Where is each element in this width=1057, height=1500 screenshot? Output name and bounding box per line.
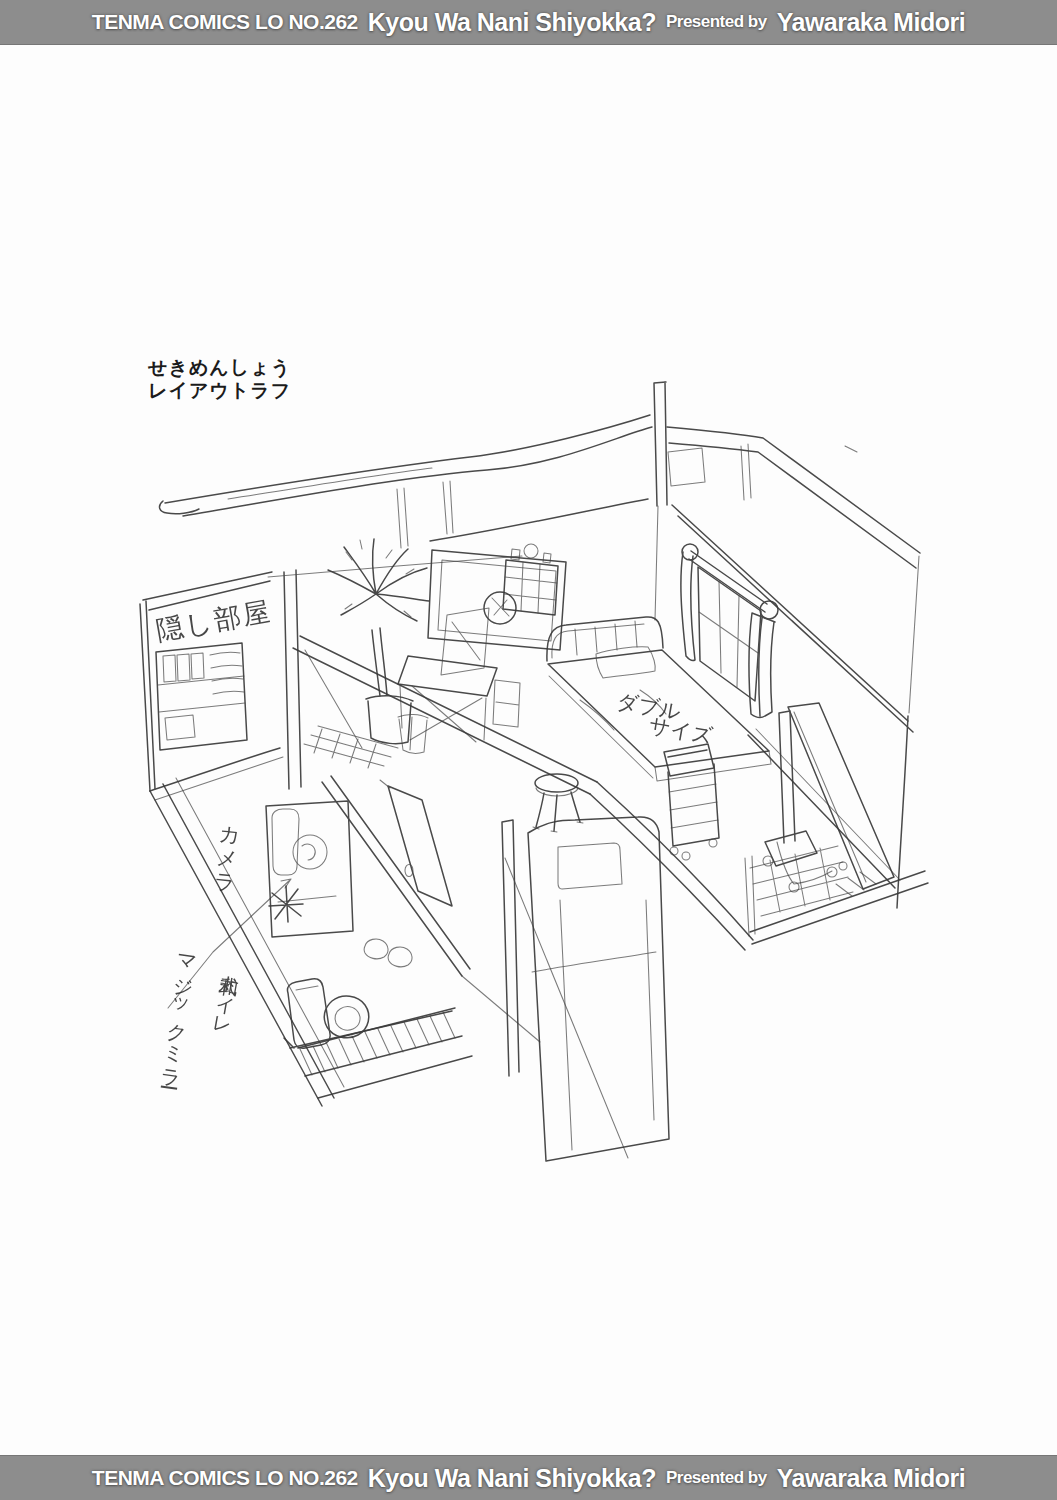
palm-plant (328, 539, 429, 753)
room-layout-sketch: 隠し部屋 カメラ ダブル サイズ 和式トイレ マジックミラー (0, 0, 1057, 1500)
banner-series: TENMA COMICS LO NO.262 (92, 1466, 358, 1490)
window (681, 544, 778, 718)
camera-sparkle-marker (269, 886, 303, 922)
standing-mirror (763, 703, 894, 892)
banner-title: Kyou Wa Nani Shiyokka? (368, 1464, 656, 1493)
chair-panel (528, 817, 669, 1161)
wall-shelf (503, 544, 558, 615)
wall-edges (268, 427, 920, 908)
tv-cabinet (428, 550, 566, 675)
label-japanese-toilet: 和式トイレ (211, 960, 245, 1034)
footer-banner: TENMA COMICS LO NO.262 Kyou Wa Nani Shiy… (0, 1455, 1057, 1500)
banner-presented-by: Presented by (666, 1468, 767, 1488)
label-camera: カメラ (212, 811, 244, 894)
toilet-room (150, 776, 540, 1106)
banner-author: Yawaraka Midori (777, 1464, 965, 1493)
manga-page: TENMA COMICS LO NO.262 Kyou Wa Nani Shiy… (0, 0, 1057, 1500)
slippers (364, 939, 412, 967)
ceiling-beam (160, 382, 667, 548)
label-hidden-room: 隠し部屋 (154, 595, 274, 646)
label-magic-mirror: マジックミラー (157, 940, 201, 1091)
stool (533, 774, 583, 832)
hallway-floor (293, 636, 753, 1158)
label-bed-size-line2: サイズ (647, 713, 715, 748)
